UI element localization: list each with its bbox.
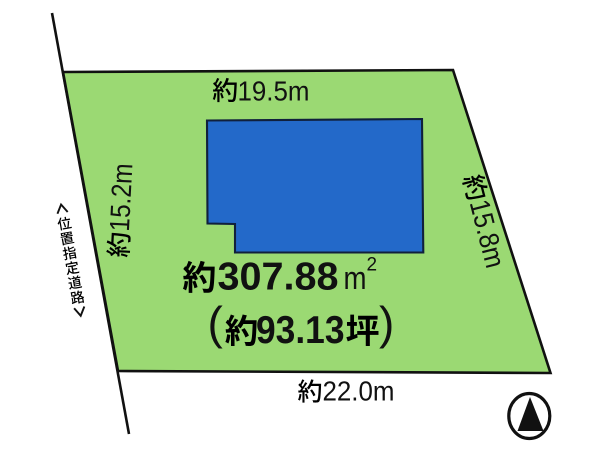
svg-text:307.88: 307.88 [218, 256, 339, 299]
svg-text:22.0m: 22.0m [323, 376, 395, 407]
svg-text:93.13: 93.13 [256, 309, 345, 352]
svg-text:19.5m: 19.5m [238, 76, 310, 107]
svg-text:m: m [344, 260, 367, 296]
svg-text:(: ( [208, 297, 224, 349]
svg-text:2: 2 [367, 255, 378, 276]
svg-text:): ) [379, 297, 394, 349]
svg-text:15.2m: 15.2m [104, 163, 139, 233]
